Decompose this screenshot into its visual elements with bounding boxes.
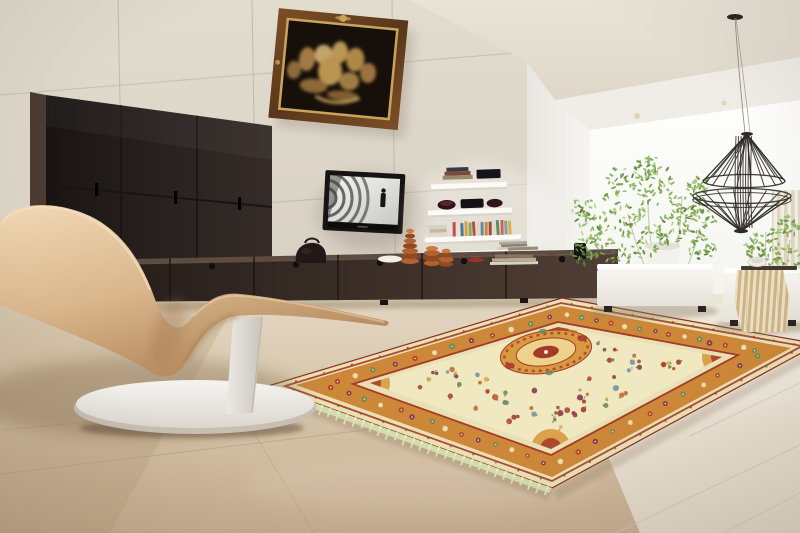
living-room-photo: [0, 0, 800, 533]
photo-vignette: [0, 0, 800, 533]
